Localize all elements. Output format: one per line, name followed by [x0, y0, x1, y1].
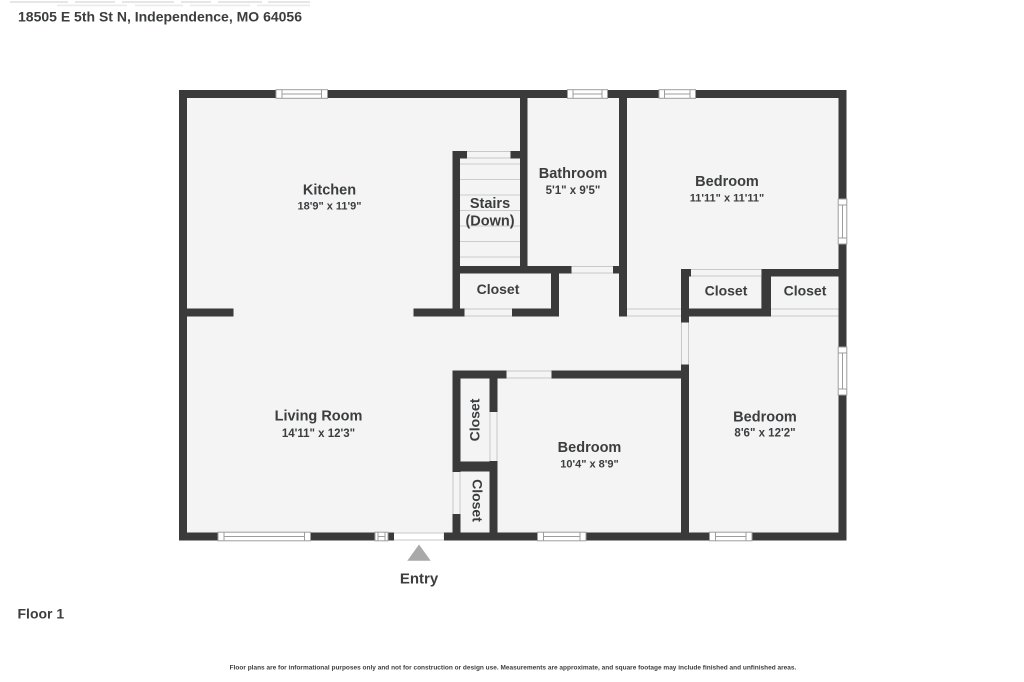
svg-text:Stairs: Stairs: [470, 196, 510, 212]
svg-text:5'1" x 9'5": 5'1" x 9'5": [546, 185, 601, 197]
svg-text:(Down): (Down): [465, 214, 514, 230]
svg-text:11'11" x 11'11": 11'11" x 11'11": [690, 193, 764, 205]
svg-text:Living Room: Living Room: [275, 409, 363, 425]
svg-text:Closet: Closet: [705, 283, 748, 299]
svg-text:Bedroom: Bedroom: [733, 410, 797, 426]
svg-text:Closet: Closet: [477, 281, 520, 297]
svg-text:8'6" x 12'2": 8'6" x 12'2": [734, 428, 795, 440]
svg-text:Closet: Closet: [784, 283, 827, 299]
svg-text:18'9" x 11'9": 18'9" x 11'9": [298, 201, 362, 213]
svg-text:10'4" x 8'9": 10'4" x 8'9": [560, 459, 618, 471]
svg-text:Closet: Closet: [467, 398, 483, 441]
svg-text:Floor plans are for informatio: Floor plans are for informational purpos…: [230, 665, 797, 672]
svg-text:Bedroom: Bedroom: [558, 440, 622, 456]
svg-text:18505 E 5th St N, Independence: 18505 E 5th St N, Independence, MO 64056: [18, 9, 302, 25]
svg-text:Bedroom: Bedroom: [695, 174, 759, 190]
svg-text:Closet: Closet: [470, 479, 486, 522]
svg-text:Kitchen: Kitchen: [303, 183, 356, 199]
svg-text:Floor 1: Floor 1: [18, 606, 65, 622]
svg-text:Bathroom: Bathroom: [539, 166, 607, 182]
svg-text:Entry: Entry: [400, 571, 439, 588]
svg-text:14'11" x 12'3": 14'11" x 12'3": [282, 428, 355, 440]
